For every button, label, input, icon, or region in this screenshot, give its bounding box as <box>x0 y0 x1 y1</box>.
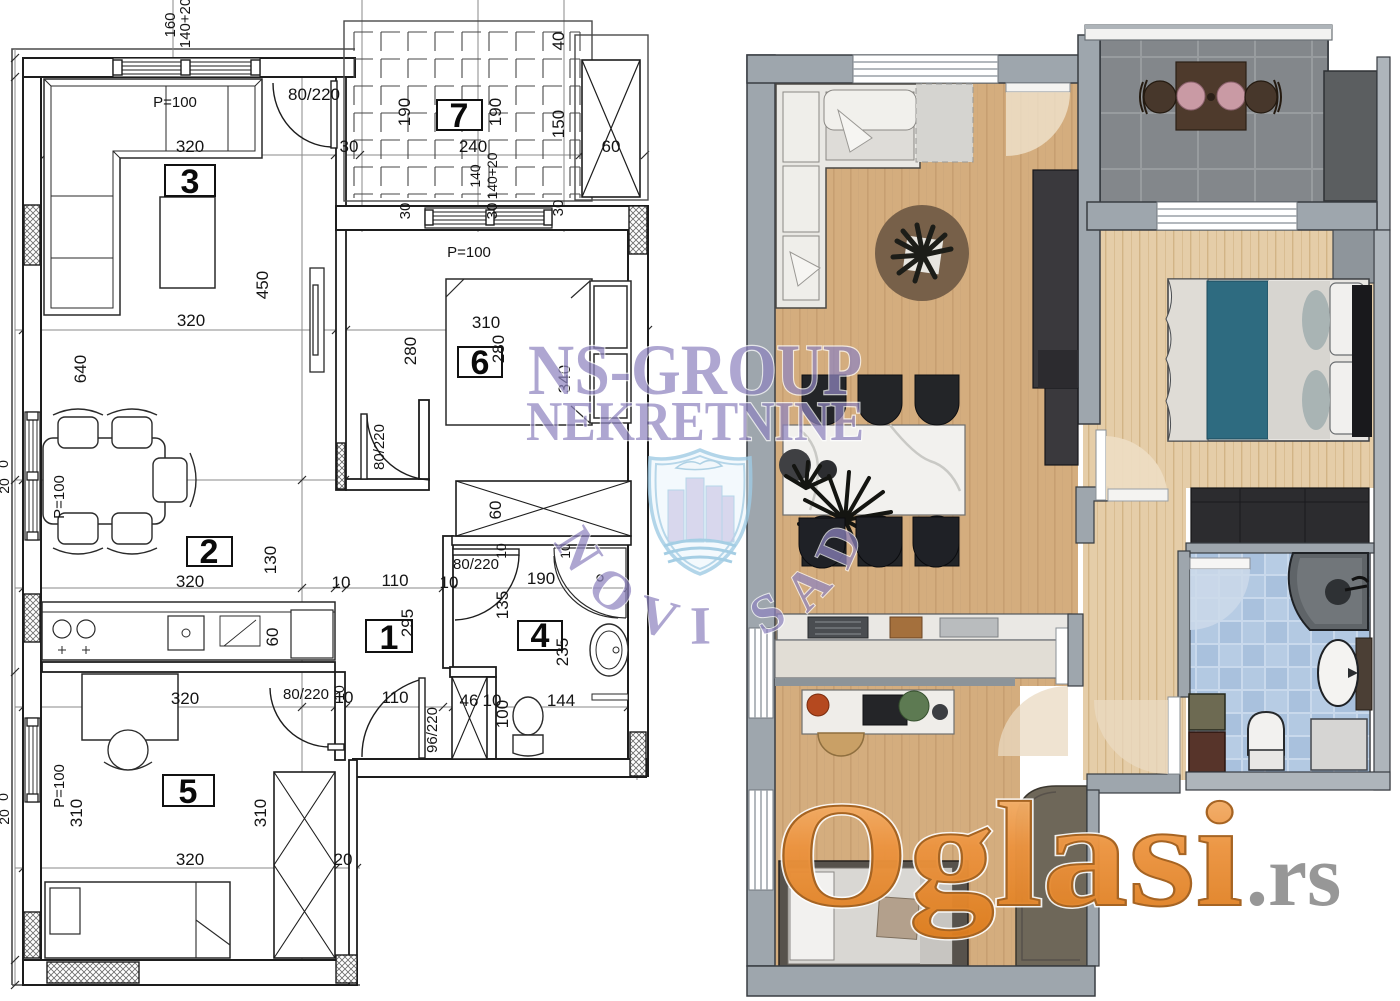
svg-text:295: 295 <box>398 609 417 637</box>
svg-text:10: 10 <box>332 573 351 592</box>
svg-text:20: 20 <box>334 850 353 869</box>
svg-text:P=100: P=100 <box>51 475 68 519</box>
svg-text:20: 20 <box>0 478 12 494</box>
svg-text:320: 320 <box>176 137 204 156</box>
svg-text:.rs: .rs <box>1246 828 1341 925</box>
svg-text:60: 60 <box>602 137 621 156</box>
svg-text:6: 6 <box>471 344 490 382</box>
svg-text:NEKRETNINE: NEKRETNINE <box>526 391 864 453</box>
svg-text:0: 0 <box>0 460 11 468</box>
svg-text:280: 280 <box>489 335 508 363</box>
svg-text:235: 235 <box>553 638 572 666</box>
svg-text:30: 30 <box>397 203 414 220</box>
svg-text:1: 1 <box>380 619 399 657</box>
svg-text:320: 320 <box>171 689 199 708</box>
svg-text:30: 30 <box>550 200 567 217</box>
svg-text:5: 5 <box>179 773 198 811</box>
svg-text:144: 144 <box>547 691 575 710</box>
svg-text:110: 110 <box>381 571 408 590</box>
svg-text:240: 240 <box>459 137 487 156</box>
svg-text:80/220: 80/220 <box>283 686 329 703</box>
svg-text:60: 60 <box>486 501 505 520</box>
svg-text:280: 280 <box>401 337 420 365</box>
svg-text:3: 3 <box>181 163 200 201</box>
svg-text:320: 320 <box>176 850 204 869</box>
svg-text:140: 140 <box>467 164 483 188</box>
svg-text:P=100: P=100 <box>51 764 68 808</box>
svg-text:450: 450 <box>253 271 272 299</box>
svg-text:46: 46 <box>460 691 479 710</box>
svg-text:140+20: 140+20 <box>177 0 194 48</box>
svg-text:60: 60 <box>263 628 282 647</box>
svg-text:100: 100 <box>493 700 512 728</box>
svg-text:190: 190 <box>486 98 505 126</box>
svg-text:80/220: 80/220 <box>371 424 388 470</box>
svg-text:10: 10 <box>440 573 459 592</box>
svg-text:P=100: P=100 <box>447 244 491 261</box>
svg-text:P=100: P=100 <box>153 94 197 111</box>
svg-text:310: 310 <box>67 799 86 827</box>
svg-text:130: 130 <box>261 546 280 574</box>
svg-text:30: 30 <box>484 203 501 220</box>
svg-text:190: 190 <box>395 98 414 126</box>
svg-text:320: 320 <box>177 311 205 330</box>
svg-text:Oglasi: Oglasi <box>775 772 1243 938</box>
svg-text:110: 110 <box>381 688 408 707</box>
svg-text:20: 20 <box>0 809 12 825</box>
svg-text:135: 135 <box>493 591 512 619</box>
svg-text:2: 2 <box>200 533 219 571</box>
svg-text:190: 190 <box>527 569 555 588</box>
svg-text:140+20: 140+20 <box>484 152 500 199</box>
svg-text:96/220: 96/220 <box>424 707 441 753</box>
svg-text:10: 10 <box>331 685 347 701</box>
svg-text:7: 7 <box>450 97 469 135</box>
svg-text:320: 320 <box>176 572 204 591</box>
svg-text:40: 40 <box>549 32 568 51</box>
svg-text:10: 10 <box>493 543 509 559</box>
svg-text:310: 310 <box>472 313 500 332</box>
svg-text:80/220: 80/220 <box>288 85 340 104</box>
svg-text:640: 640 <box>71 355 90 383</box>
svg-text:150: 150 <box>549 110 568 138</box>
svg-text:4: 4 <box>531 617 550 655</box>
svg-text:0: 0 <box>0 793 11 801</box>
svg-text:30: 30 <box>340 137 359 156</box>
svg-text:310: 310 <box>251 799 270 827</box>
